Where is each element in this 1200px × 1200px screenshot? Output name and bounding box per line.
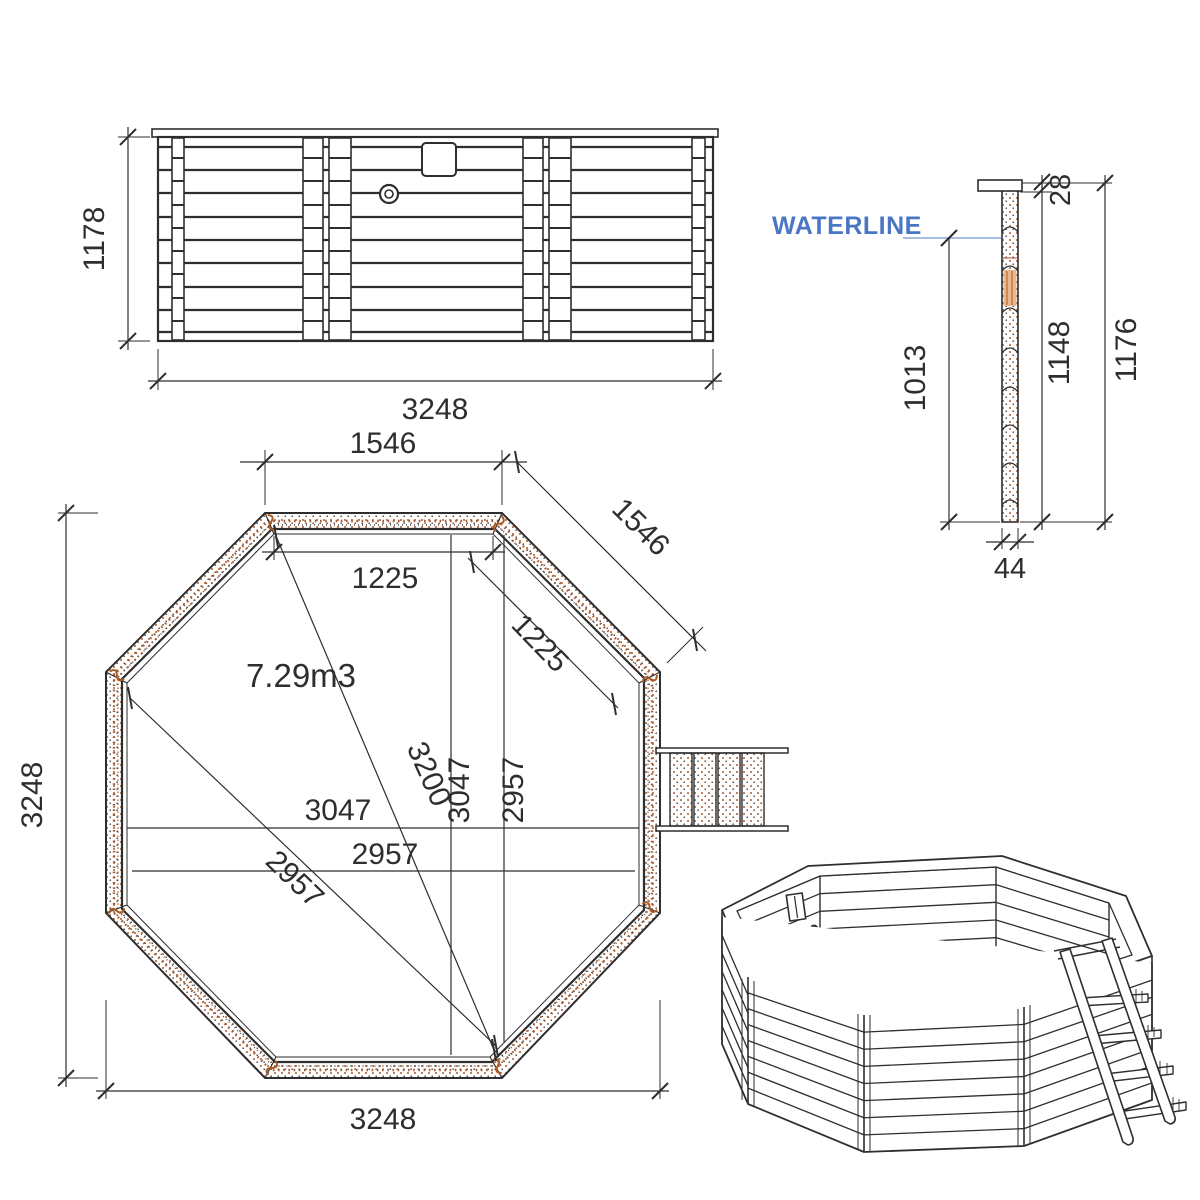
technical-drawing-page: 1178 3248 WATERLINE 1013 — [0, 0, 1200, 1200]
highlight-plank — [1004, 270, 1017, 306]
isometric-view — [722, 856, 1186, 1152]
skimmer-box — [422, 143, 456, 176]
elevation-height-label: 1178 — [78, 207, 111, 272]
dim-water-depth: 1013 — [899, 230, 1000, 530]
dim-elevation-width: 3248 — [148, 349, 722, 426]
inner-width-h-label: 3047 — [305, 794, 372, 827]
plank-thickness-label: 44 — [994, 553, 1026, 585]
ladder-step — [670, 753, 692, 826]
jet-fitting-center — [385, 190, 393, 198]
ladder-step — [742, 753, 764, 826]
volume-label: 7.29m3 — [246, 657, 356, 694]
batten-column — [172, 138, 184, 340]
overall-width-label: 3248 — [350, 1103, 417, 1136]
interior-dim-lines — [127, 535, 639, 1055]
wall-section — [1002, 190, 1018, 522]
batten-column — [303, 138, 323, 340]
batten-column — [329, 138, 351, 340]
section-view: WATERLINE 1013 28 1148 1176 — [772, 174, 1143, 585]
batten-column — [549, 138, 571, 340]
ladder-step — [694, 753, 716, 826]
elevation-width-label: 3248 — [402, 393, 469, 426]
cap-rail — [978, 180, 1022, 191]
overall-height-label: 3248 — [16, 762, 49, 829]
batten-column — [692, 138, 705, 340]
diagonal-side-label: 1546 — [605, 492, 676, 563]
top-side-label: 1546 — [350, 427, 417, 460]
dim-inner-top: 1225 — [262, 536, 505, 595]
batten-column — [523, 138, 543, 340]
wall-band — [106, 513, 660, 1078]
dim-total-height: 1176 — [1097, 175, 1143, 530]
drawing-sheet: 1178 3248 WATERLINE 1013 — [0, 0, 1200, 1200]
dim-top-side: 1546 — [240, 427, 527, 505]
waterline-label: WATERLINE — [772, 212, 922, 240]
ladder-rail-bottom — [656, 826, 788, 831]
top-cap — [152, 129, 718, 137]
inner-face-line — [127, 534, 639, 1057]
dim-elevation-height: 1178 — [78, 127, 150, 350]
floor-width-v-label: 2957 — [497, 757, 530, 824]
cap-thickness-label: 28 — [1045, 174, 1077, 206]
elevation-view: 1178 3248 — [78, 127, 722, 426]
inner-width-v-label: 3047 — [443, 757, 476, 824]
ladder-step — [718, 753, 740, 826]
dim-plank-thickness: 44 — [986, 528, 1034, 585]
plan-ladder — [656, 748, 788, 831]
ladder-rail-top — [656, 748, 788, 753]
plan-view: 7.29m3 1546 1546 1225 1225 — [16, 427, 788, 1136]
total-height-label: 1176 — [1110, 318, 1143, 383]
inner-diagonal-label: 1225 — [505, 608, 575, 679]
dim-overall-height: 3248 — [16, 504, 98, 1087]
waterline-annotation: WATERLINE — [772, 212, 1001, 240]
wall-height-label: 1148 — [1043, 321, 1076, 386]
dim-wall-height: 28 1148 — [1020, 174, 1112, 530]
water-depth-label: 1013 — [899, 345, 932, 412]
floor-width-h-label: 2957 — [352, 838, 419, 871]
inner-top-label: 1225 — [352, 562, 419, 595]
